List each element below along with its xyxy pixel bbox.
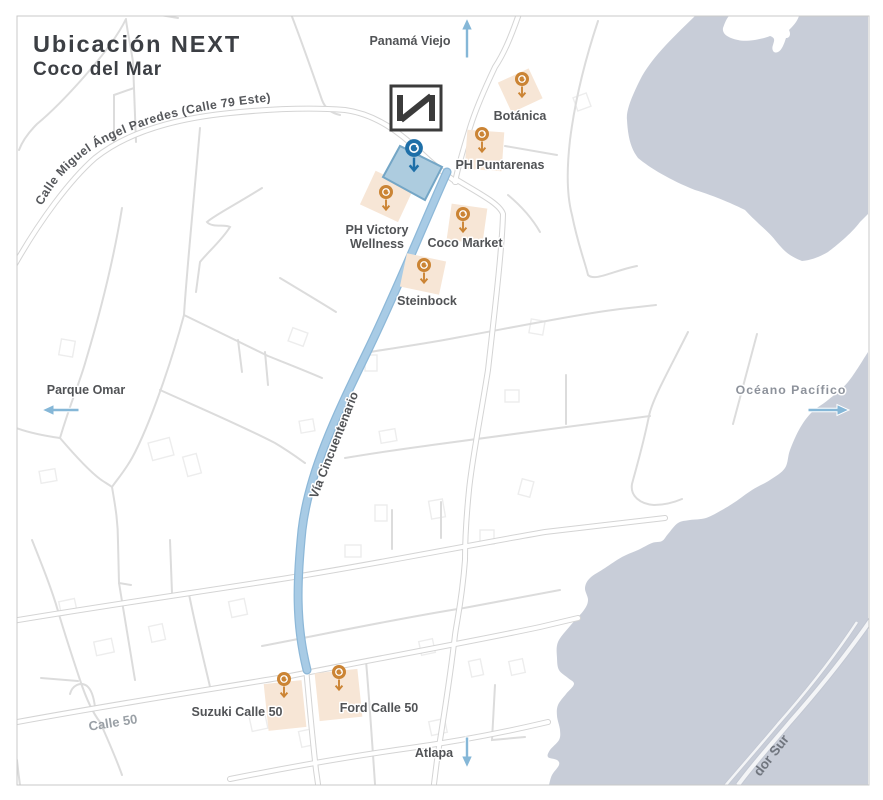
svg-text:Suzuki Calle 50: Suzuki Calle 50	[191, 705, 282, 719]
svg-text:Ford Calle 50: Ford Calle 50	[340, 701, 419, 715]
svg-text:Panamá Viejo: Panamá Viejo	[369, 34, 450, 48]
svg-text:Atlapa: Atlapa	[415, 746, 454, 760]
svg-text:Océano Pacífico: Océano Pacífico	[736, 383, 847, 397]
svg-text:Coco del Mar: Coco del Mar	[33, 59, 162, 80]
svg-text:PH Victory: PH Victory	[346, 223, 409, 237]
svg-text:Botánica: Botánica	[494, 109, 548, 123]
svg-text:Ubicación NEXT: Ubicación NEXT	[33, 31, 241, 57]
svg-text:Wellness: Wellness	[350, 237, 404, 251]
svg-text:Coco Market: Coco Market	[427, 236, 503, 250]
svg-text:Steinbock: Steinbock	[397, 294, 457, 308]
svg-text:Parque Omar: Parque Omar	[47, 383, 126, 397]
svg-text:PH Puntarenas: PH Puntarenas	[456, 158, 545, 172]
